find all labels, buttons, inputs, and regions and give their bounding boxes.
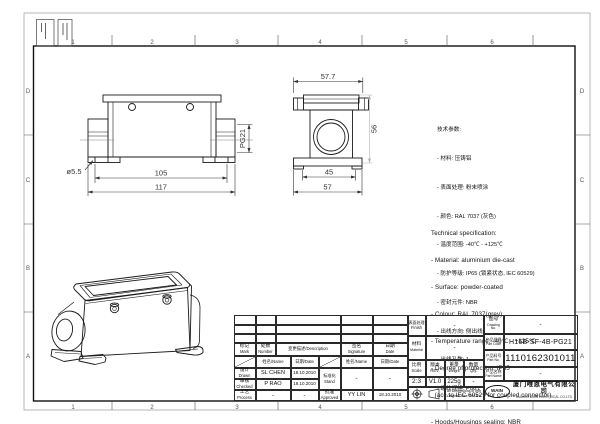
drawn-date: 18.10.2010 (291, 368, 319, 379)
dim-hole-dia: ø5.5 (66, 167, 81, 176)
front-view-dimensions: 105 117 ø5.5 PG21 (66, 125, 252, 197)
process-name: - (256, 390, 291, 401)
revision-cell (276, 334, 341, 343)
spec-line: - Hoods/Housings sealing: NBR (431, 418, 551, 424)
corner-stamp-boxes (37, 20, 73, 47)
col-header-date: 日期Date (373, 343, 408, 356)
subheader-name: 姓名/Name (256, 356, 291, 368)
dim-105: 105 (155, 169, 168, 178)
drawn-name: SL CHEN (256, 368, 291, 379)
svg-text:2: 2 (150, 40, 154, 46)
revision-cell (276, 325, 341, 335)
svg-text:C: C (26, 178, 31, 184)
dimensions-note: All Dimensions in mm Original Size DIN A… (445, 387, 484, 401)
svg-text:5: 5 (404, 40, 408, 46)
label-part-no: 产品料号Part No. (484, 350, 504, 367)
label-standardized: 标准化Stand (319, 368, 341, 390)
svg-text:D: D (26, 89, 31, 95)
label-material: 材料Material (408, 336, 426, 360)
dim-117: 117 (155, 183, 167, 192)
company-cell: WAIN 厦门唯恩电气有限公司 XIAMEN WAIN ELECTRICAL C… (484, 381, 578, 401)
svg-text:A: A (580, 354, 584, 360)
revision-cell (234, 315, 256, 325)
revision-cell (234, 325, 256, 335)
company-name-en: XIAMEN WAIN ELECTRICAL CO.LTD (516, 396, 572, 399)
checked-date: 18.10.2010 (291, 379, 319, 390)
label-process: 工艺Process (234, 390, 256, 401)
label-rev: 版本REV. (426, 360, 445, 377)
standardized-signature: - (341, 368, 373, 390)
diagonal-cell (319, 356, 341, 368)
material-value: - (426, 336, 484, 360)
label-qty: 数量Qty. (464, 360, 484, 377)
approved-date: 18.10.2010 (373, 390, 408, 401)
approved-name: YY LIN (341, 390, 373, 401)
title-block: 标记Mark 处数Number 变更描述/Description 签名Signa… (234, 315, 578, 401)
col-header-number: 处数Number (256, 343, 276, 356)
part-no-value: 1110162301011 (504, 350, 578, 367)
label-scale: 比例Scale (408, 360, 426, 377)
svg-text:C: C (580, 178, 585, 184)
dim-45: 45 (325, 168, 333, 177)
col-header-signature: 签名Signature (341, 343, 373, 356)
rev-value: V1.0 (426, 377, 445, 387)
col-header-mark: 标记Mark (234, 343, 256, 356)
dim-57: 57 (323, 183, 331, 192)
projection-method-icon (409, 388, 442, 400)
weight-value: 225g (445, 377, 464, 387)
diagonal-cell (234, 356, 256, 368)
revision-cell (234, 334, 256, 343)
svg-text:3: 3 (235, 40, 239, 46)
spec-line: - Surface: powder-coated (431, 283, 551, 292)
dim-56: 56 (370, 125, 379, 133)
label-part-name: 产品名称Part Name (484, 367, 504, 381)
label-drawing-no: 图号Drawing No. (484, 315, 504, 334)
qty-value: - (464, 377, 484, 387)
subheader-date: 日期/Date (373, 356, 408, 368)
process-date: - (291, 390, 319, 401)
drawing-sheet: 1 2 3 4 5 6 1 2 3 4 5 6 D C B A D C B A (0, 0, 600, 424)
side-view (294, 95, 369, 169)
side-view-dimensions: 57.7 45 57 56 (294, 72, 379, 196)
spec-line: - 表面处理: 粉末喷涂 (437, 184, 535, 194)
revision-cell (276, 315, 341, 325)
col-header-description: 变更描述/Description (276, 343, 341, 356)
label-drawn: 设计Drawn (234, 368, 256, 379)
svg-text:D: D (580, 89, 585, 95)
revision-cell (256, 315, 276, 325)
subheader-date: 日期/Date (291, 356, 319, 368)
label-weight: 重量Weight (445, 360, 464, 377)
front-view (80, 95, 253, 163)
svg-text:4: 4 (318, 40, 322, 46)
company-name-cn: 厦门唯恩电气有限公司 (512, 382, 577, 395)
standardized-date: - (373, 368, 408, 390)
zone-letters-right: D C B A (580, 89, 585, 360)
spec-en-title: Technical specification: (431, 229, 551, 238)
isometric-view (49, 272, 203, 365)
subheader-name: 姓名/Name (341, 356, 373, 368)
label-checked: 审核Checked (234, 379, 256, 390)
revision-cell (256, 325, 276, 335)
projection-symbols-cell (408, 387, 445, 401)
label-part-code: 产品代号Part Code (484, 334, 504, 350)
zone-letters-left: D C B A (26, 89, 31, 360)
dim-pg21: PG21 (238, 129, 247, 148)
svg-text:B: B (580, 266, 584, 272)
revision-cell (373, 325, 408, 335)
zone-numbers-top: 1 2 3 4 5 6 (71, 40, 494, 46)
revision-cell (341, 325, 373, 335)
scale-value: 2:3 (408, 377, 426, 387)
spec-line: - 材料: 压铸铝 (437, 155, 535, 165)
svg-text:6: 6 (490, 40, 494, 46)
revision-cell (341, 315, 373, 325)
checked-name: P RAO (256, 379, 291, 390)
part-name-value: - (504, 367, 578, 381)
revision-cell (373, 334, 408, 343)
spec-cn-title: 技术参数: (437, 126, 535, 136)
revision-cell (341, 334, 373, 343)
label-finish: 表面处理Finish (408, 315, 426, 336)
svg-text:B: B (26, 266, 30, 272)
finish-value: - (426, 315, 484, 336)
label-approved: 批准Approved (319, 390, 341, 401)
revision-cell (373, 315, 408, 325)
dim-57-7: 57.7 (321, 72, 336, 81)
drawing-no-value: - (504, 315, 578, 334)
revision-cell (256, 334, 276, 343)
part-code-value: H16B-SF-4B-PG21 (504, 334, 578, 350)
spec-line: - Material: aluminium die-cast (431, 256, 551, 265)
wain-logo: WAIN (485, 385, 510, 398)
svg-text:A: A (26, 354, 30, 360)
